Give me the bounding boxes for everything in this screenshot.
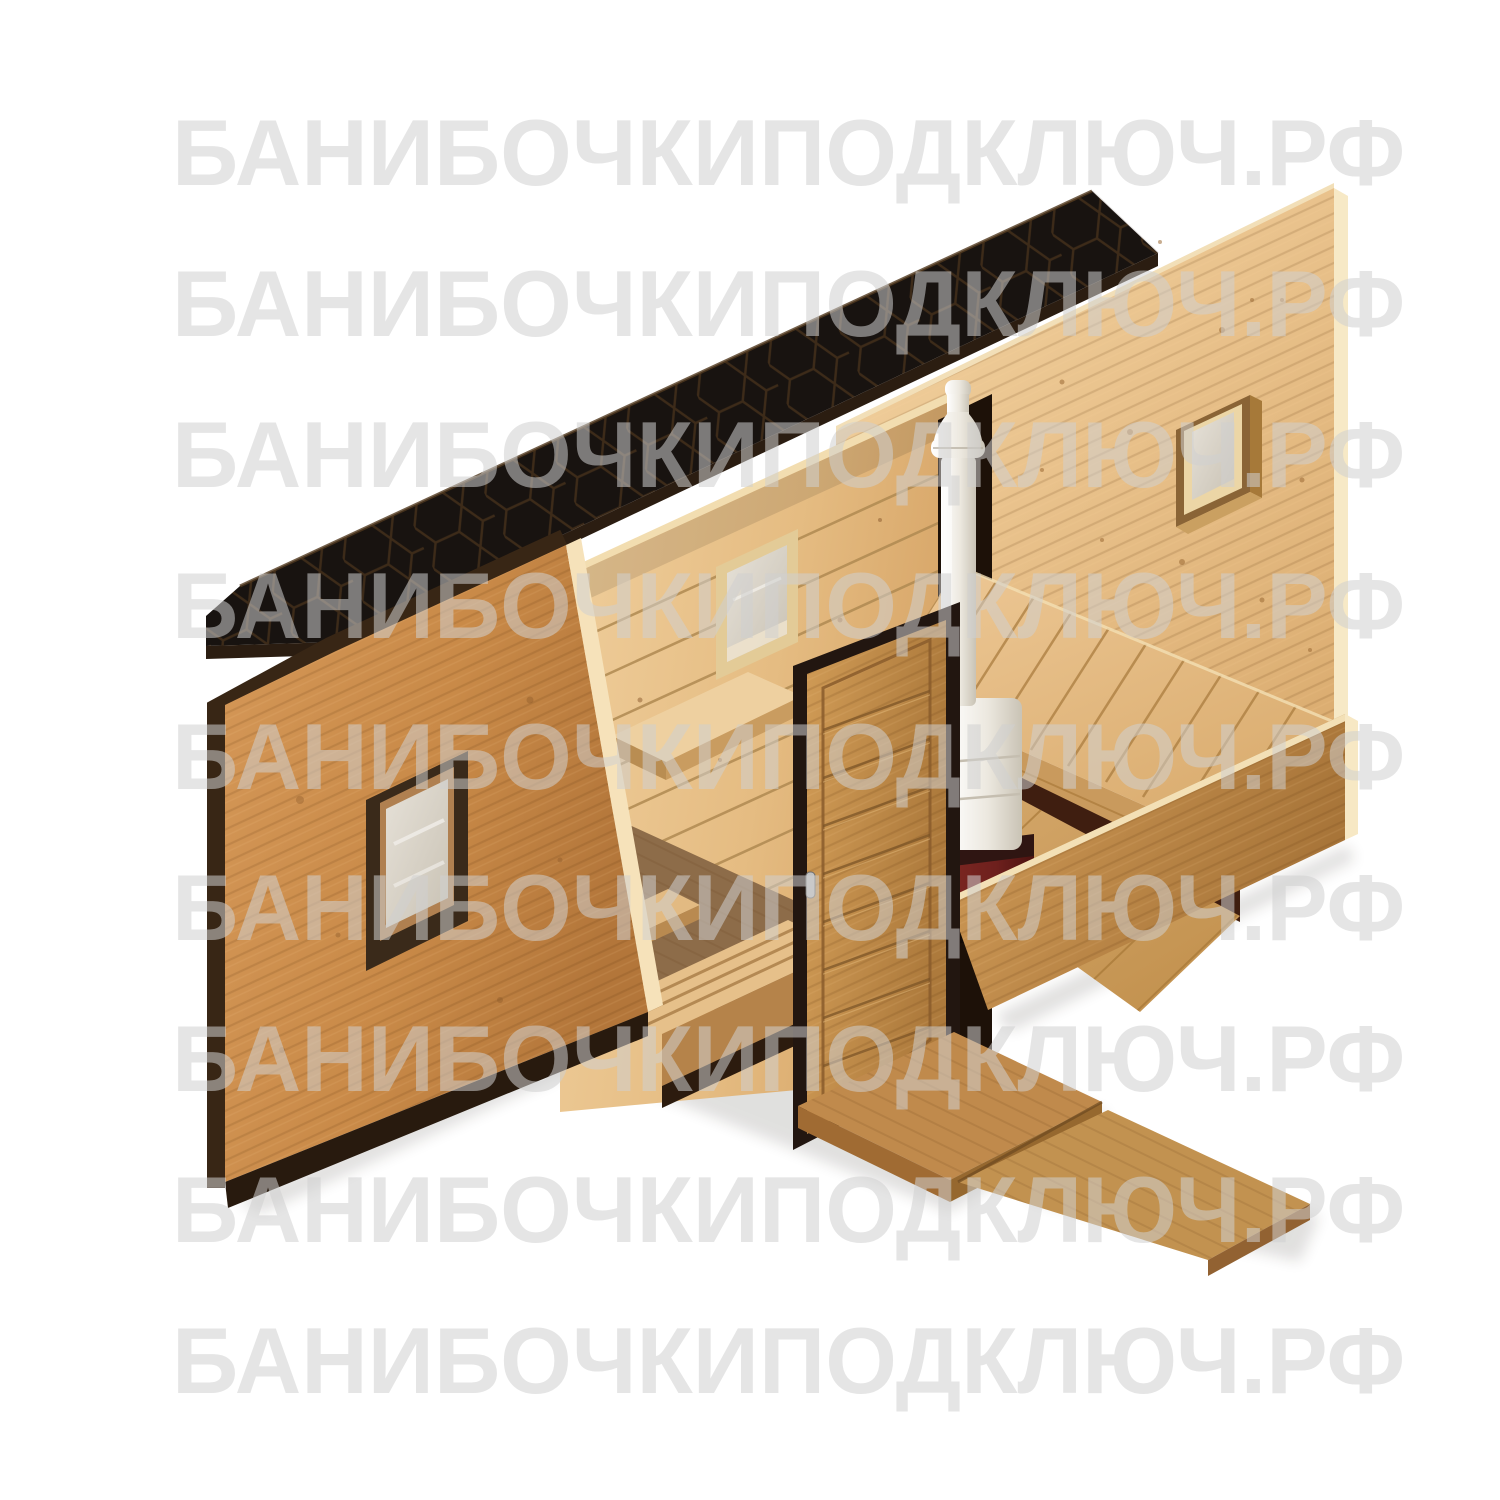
- sauna-cutaway-render: [0, 0, 1500, 1500]
- page: БАНИБОЧКИПОДКЛЮЧ.РФБАНИБОЧКИПОДКЛЮЧ.РФБА…: [0, 0, 1500, 1500]
- back-wall-cut-edge: [1334, 188, 1348, 744]
- door-handle: [806, 872, 815, 898]
